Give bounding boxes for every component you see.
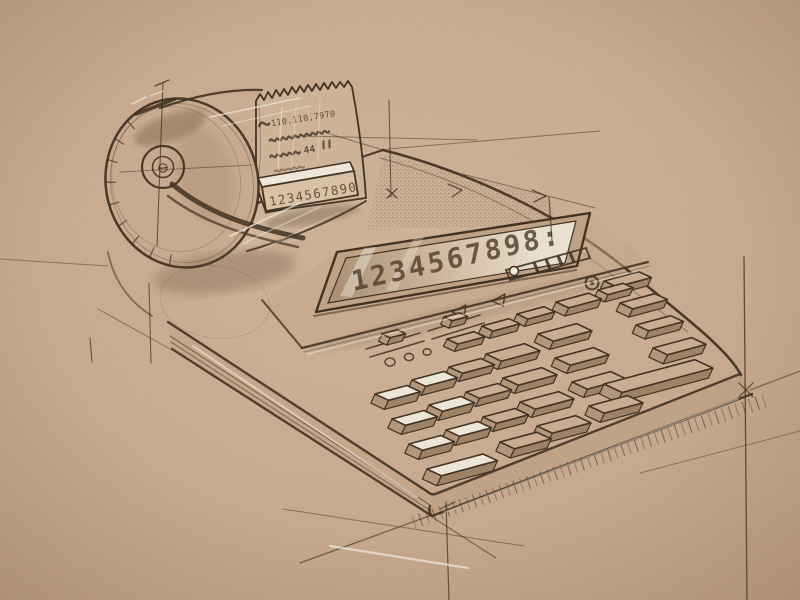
sketch-page: 110.110,7970 44 1234567890	[0, 0, 800, 600]
sketch-canvas: 110.110,7970 44 1234567890	[0, 0, 800, 600]
vignette	[0, 0, 800, 600]
